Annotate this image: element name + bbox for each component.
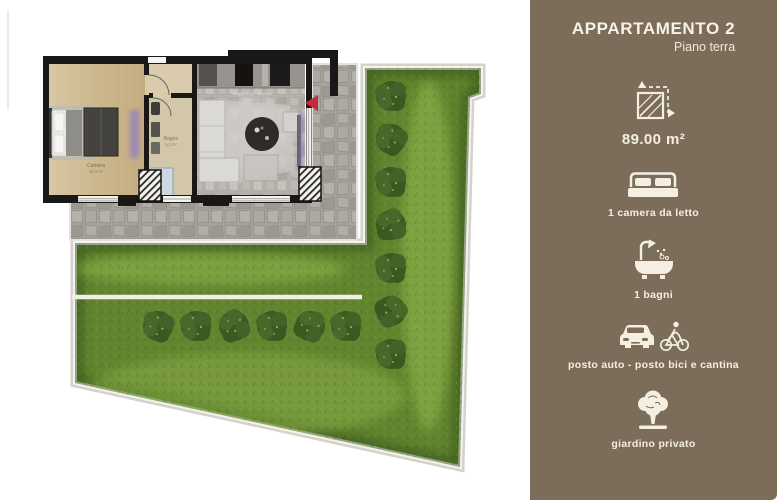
floor-subtitle: Piano terra: [572, 40, 735, 54]
brochure-page: Camera 16,4 m² Bagno 5,2 m² Soggiorno - …: [0, 0, 777, 500]
living-light-accent: [299, 112, 304, 170]
area-value: 89.00 m²: [622, 131, 685, 148]
room-area-camera: 16,4 m²: [89, 169, 104, 174]
parking-label: posto auto - posto bici e cantina: [568, 358, 739, 373]
feature-area: 89.00 m²: [622, 80, 685, 148]
feature-bathrooms: 1 bagni: [632, 238, 676, 303]
kitchen-counter: [197, 62, 305, 88]
apartment-title: APPARTAMENTO 2: [572, 19, 735, 39]
shaft-hatch: [139, 170, 161, 201]
shaft-hatch: [299, 167, 321, 201]
title-block: APPARTAMENTO 2 Piano terra: [572, 19, 735, 54]
dining-set: [244, 155, 278, 181]
garden-label: giardino privato: [611, 437, 695, 452]
room-label-soggiorno: Soggiorno - Cucina: [232, 91, 272, 96]
double-bed-icon: [626, 170, 680, 200]
room-area-soggiorno: 23,8 m²: [245, 97, 260, 102]
feature-garden: giardino privato: [611, 387, 695, 452]
room-area-bagno: 5,2 m²: [165, 142, 177, 147]
bed: [47, 108, 82, 158]
feature-parking: posto auto - posto bici e cantina: [568, 318, 739, 373]
feature-bedrooms: 1 camera da letto: [608, 170, 699, 221]
bicycle-icon: [661, 329, 688, 350]
bedrooms-label: 1 camera da letto: [608, 206, 699, 221]
sidebar: APPARTAMENTO 2 Piano terra 89.00 m²: [530, 0, 777, 500]
tree-icon: [633, 387, 673, 431]
armchair: [283, 112, 299, 132]
car-icon: [620, 325, 654, 348]
floor-plan: Camera 16,4 m² Bagno 5,2 m² Soggiorno - …: [0, 0, 530, 500]
bathtub-icon: [632, 238, 676, 282]
bathrooms-label: 1 bagni: [634, 288, 673, 303]
bedroom-light-accent: [130, 110, 139, 158]
car-and-bicycle-icon: [616, 318, 690, 352]
hallway-floor: [145, 62, 197, 97]
area-dimensions-icon: [631, 80, 677, 128]
coffee-table: [245, 117, 279, 151]
apartment: [43, 50, 338, 206]
